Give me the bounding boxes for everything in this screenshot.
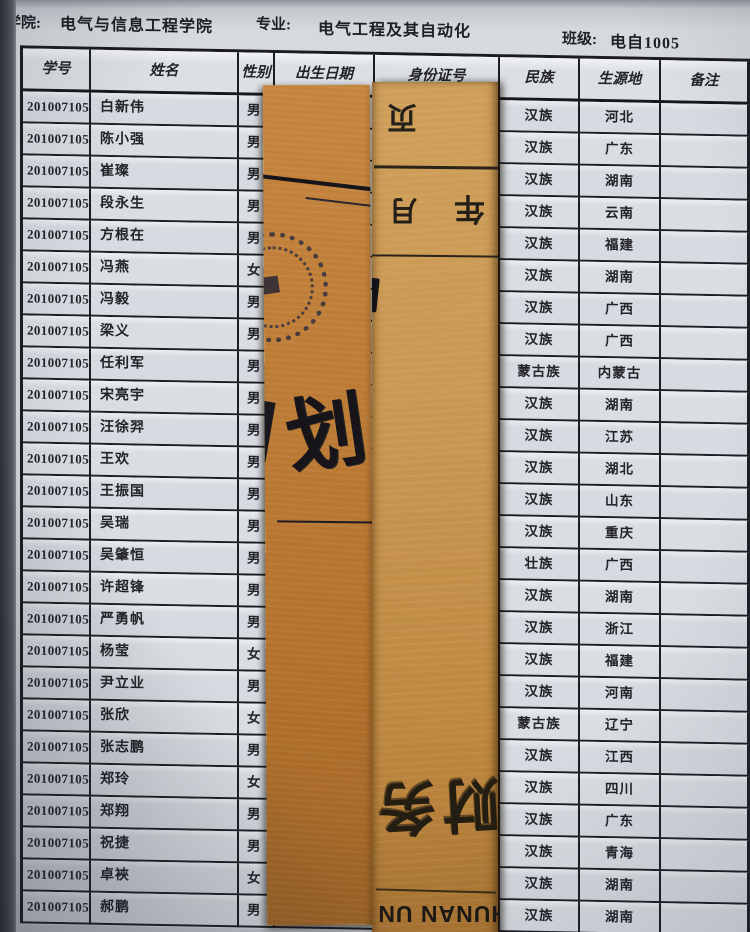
slip-upside-down-page-char: 页: [387, 101, 417, 131]
name-cell: 张志鹏: [91, 733, 239, 768]
ethnicity-cell: 汉族: [500, 804, 580, 837]
origin-cell: 河北: [580, 102, 661, 135]
name-cell: 郝鹏: [91, 893, 239, 928]
origin-cell: 重庆: [580, 518, 661, 551]
remark-cell: [661, 903, 749, 932]
remark-cell: [661, 295, 749, 329]
kraft-slip-left: 划: [263, 85, 374, 926]
remark-cell: [661, 231, 749, 265]
name-cell: 宋亮宇: [91, 381, 239, 416]
remark-cell: [661, 199, 749, 233]
origin-cell: 湖南: [580, 870, 661, 903]
student-id-cell: 20100710502: [23, 123, 91, 156]
slip-print-char: 划: [281, 390, 372, 481]
remark-cell: [661, 423, 749, 457]
remark-cell: [661, 103, 749, 137]
slip-upside-down-year-char: 年: [454, 193, 485, 224]
slip-print-rule: [376, 888, 496, 893]
remark-cell: [661, 711, 749, 745]
college-value: 电气与信息工程学院: [60, 10, 213, 37]
header-cell-student-id: 学号: [23, 48, 91, 92]
name-cell: 崔璨: [91, 157, 239, 192]
header-cell-ethnicity: 民族: [500, 57, 580, 101]
name-cell: 许超锋: [91, 573, 239, 608]
name-cell: 汪徐羿: [91, 413, 239, 448]
origin-cell: 福建: [580, 646, 661, 679]
student-id-cell: 20100710522: [23, 731, 91, 764]
name-cell: 张欣: [91, 701, 239, 736]
name-cell: 王欢: [91, 445, 239, 480]
student-id-cell: 20100710512: [23, 411, 91, 444]
student-id-cell: 20100710523: [23, 763, 91, 796]
origin-cell: 湖南: [580, 390, 661, 423]
header-cell-name: 姓名: [91, 50, 239, 96]
student-id-cell: 20100710517: [23, 571, 91, 604]
origin-cell: 浙江: [580, 614, 661, 647]
name-cell: 梁义: [91, 317, 239, 352]
ethnicity-cell: 汉族: [500, 164, 580, 197]
name-cell: 吴瑞: [91, 509, 239, 544]
slip-upside-down-month-char: 月: [389, 195, 417, 223]
major-value: 电气工程及其自动化: [318, 15, 471, 42]
remark-cell: [661, 679, 749, 713]
ethnicity-cell: 蒙古族: [500, 708, 580, 741]
ethnicity-cell: 汉族: [500, 292, 580, 325]
slip-print-rule: [372, 254, 498, 257]
student-id-cell: 20100710527: [23, 891, 91, 924]
origin-cell: 广西: [580, 294, 661, 327]
ethnicity-cell: 汉族: [500, 516, 580, 549]
student-id-cell: 20100710518: [23, 603, 91, 636]
kraft-slip-right: 页 月 年 财务 HUNAN UN: [372, 82, 498, 932]
ethnicity-cell: 汉族: [500, 228, 580, 261]
class-label: 班级:: [562, 27, 597, 49]
name-cell: 郑玲: [91, 765, 239, 800]
origin-cell: 湖南: [580, 902, 661, 932]
remark-cell: [661, 487, 749, 521]
student-id-cell: 20100710509: [23, 315, 91, 348]
student-id-cell: 20100710513: [23, 443, 91, 476]
student-id-cell: 20100710505: [23, 219, 91, 252]
remark-cell: [661, 327, 749, 361]
ethnicity-cell: 汉族: [500, 484, 580, 517]
student-id-cell: 20100710510: [23, 347, 91, 380]
student-id-cell: 20100710524: [23, 795, 91, 828]
page-left-edge: [0, 0, 16, 932]
university-seal-icon: [263, 232, 328, 343]
origin-cell: 江苏: [580, 422, 661, 455]
ethnicity-cell: 汉族: [500, 740, 580, 773]
student-id-cell: 20100710525: [23, 827, 91, 860]
ethnicity-cell: 汉族: [500, 580, 580, 613]
roster-photo-page: 学院: 电气与信息工程学院 专业: 电气工程及其自动化 班级: 电自1005 学…: [0, 0, 750, 932]
student-id-cell: 20100710515: [23, 507, 91, 540]
student-id-cell: 20100710507: [23, 283, 91, 316]
ethnicity-cell: 汉族: [500, 836, 580, 869]
ethnicity-cell: 汉族: [500, 676, 580, 709]
name-cell: 卓裌: [91, 861, 239, 896]
remark-cell: [661, 519, 749, 553]
origin-cell: 湖南: [580, 262, 661, 295]
origin-cell: 内蒙古: [580, 358, 661, 391]
slip-print-rule: [306, 197, 372, 207]
student-id-cell: 20100710514: [23, 475, 91, 508]
ethnicity-cell: 汉族: [500, 420, 580, 453]
ethnicity-cell: 汉族: [500, 772, 580, 805]
slip-print-rule: [277, 520, 373, 523]
ethnicity-cell: 汉族: [500, 132, 580, 165]
student-id-cell: 20100710501: [23, 91, 91, 124]
remark-cell: [661, 743, 749, 777]
name-cell: 尹立业: [91, 669, 239, 704]
origin-cell: 福建: [580, 230, 661, 263]
origin-cell: 广西: [580, 550, 661, 583]
remark-cell: [661, 135, 749, 169]
header-cell-origin: 生源地: [580, 59, 661, 103]
name-cell: 段永生: [91, 189, 239, 224]
ethnicity-cell: 汉族: [500, 388, 580, 421]
student-id-cell: 20100710516: [23, 539, 91, 572]
student-id-cell: 20100710506: [23, 251, 91, 284]
student-id-cell: 20100710521: [23, 699, 91, 732]
remark-cell: [661, 775, 749, 809]
origin-cell: 河南: [580, 678, 661, 711]
student-id-cell: 20100710503: [23, 155, 91, 188]
remark-cell: [661, 615, 749, 649]
origin-cell: 湖南: [580, 166, 661, 199]
student-id-cell: 20100710526: [23, 859, 91, 892]
ethnicity-cell: 汉族: [500, 324, 580, 357]
ethnicity-cell: 汉族: [500, 612, 580, 645]
name-cell: 冯燕: [91, 253, 239, 288]
origin-cell: 青海: [580, 838, 661, 871]
ethnicity-cell: 汉族: [500, 868, 580, 901]
slip-print-rule: [374, 165, 498, 169]
slip-upside-down-brand-chars: 财务: [377, 773, 498, 837]
name-cell: 严勇帆: [91, 605, 239, 640]
origin-cell: 江西: [580, 742, 661, 775]
origin-cell: 广东: [580, 134, 661, 167]
name-cell: 郑翔: [91, 797, 239, 832]
student-id-cell: 20100710520: [23, 667, 91, 700]
remark-cell: [661, 263, 749, 297]
name-cell: 任利军: [91, 349, 239, 384]
class-value: 电自1005: [610, 28, 680, 53]
major-label: 专业:: [256, 13, 291, 35]
ethnicity-cell: 汉族: [500, 196, 580, 229]
ethnicity-cell: 汉族: [500, 452, 580, 485]
origin-cell: 广西: [580, 326, 661, 359]
slip-upside-down-latin-text: HUNAN UN: [372, 900, 498, 927]
name-cell: 陈小强: [91, 125, 239, 160]
origin-cell: 辽宁: [580, 710, 661, 743]
origin-cell: 湖北: [580, 454, 661, 487]
name-cell: 杨莹: [91, 637, 239, 672]
ethnicity-cell: 蒙古族: [500, 356, 580, 389]
remark-cell: [661, 871, 749, 905]
remark-cell: [661, 647, 749, 681]
remark-cell: [661, 391, 749, 425]
remark-cell: [661, 167, 749, 201]
name-cell: 吴肇恒: [91, 541, 239, 576]
slip-print-rule: [263, 174, 374, 191]
remark-cell: [661, 359, 749, 393]
remark-cell: [661, 455, 749, 489]
remark-cell: [661, 551, 749, 585]
origin-cell: 四川: [580, 774, 661, 807]
remark-cell: [661, 839, 749, 873]
student-id-cell: 20100710511: [23, 379, 91, 412]
student-id-cell: 20100710519: [23, 635, 91, 668]
origin-cell: 广东: [580, 806, 661, 839]
remark-cell: [661, 583, 749, 617]
name-cell: 方根在: [91, 221, 239, 256]
student-id-cell: 20100710504: [23, 187, 91, 220]
ethnicity-cell: 壮族: [500, 548, 580, 581]
origin-cell: 山东: [580, 486, 661, 519]
name-cell: 冯毅: [91, 285, 239, 320]
origin-cell: 湖南: [580, 582, 661, 615]
name-cell: 王振国: [91, 477, 239, 512]
remark-cell: [661, 807, 749, 841]
clipped-print-fragment: [372, 277, 380, 312]
ethnicity-cell: 汉族: [500, 260, 580, 293]
name-cell: 祝捷: [91, 829, 239, 864]
origin-cell: 云南: [580, 198, 661, 231]
page-header: 学院: 电气与信息工程学院 专业: 电气工程及其自动化 班级: 电自1005: [0, 0, 750, 14]
name-cell: 白新伟: [91, 93, 239, 128]
header-cell-remark: 备注: [661, 60, 749, 105]
ethnicity-cell: 汉族: [500, 644, 580, 677]
ethnicity-cell: 汉族: [500, 100, 580, 133]
clipped-print-fragment: [263, 401, 276, 463]
ethnicity-cell: 汉族: [500, 900, 580, 932]
